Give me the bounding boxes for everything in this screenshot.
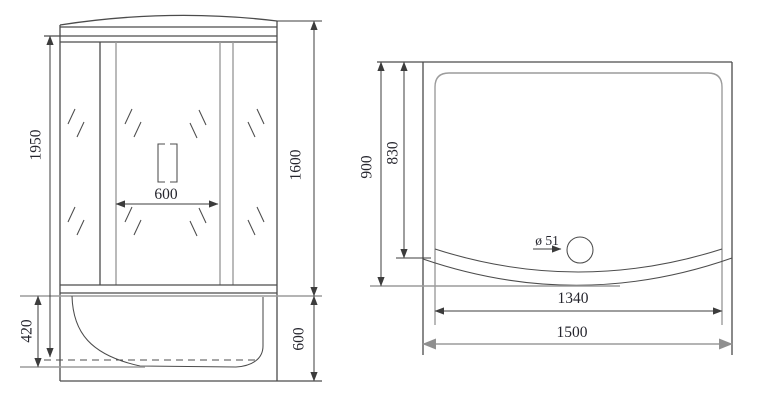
glass-hatch-icon: [248, 109, 264, 137]
glass-hatch-icon: [248, 207, 264, 235]
page-background: 1950 600 1600 420 600 900 830 ø 51 1340 …: [0, 0, 768, 403]
dim-label-tray-height: 600: [291, 327, 308, 351]
glass-hatch-icon: [68, 207, 84, 235]
dim-label-outer-depth: 900: [359, 155, 376, 179]
door-handle-left-bracket: [158, 144, 165, 182]
dim-label-inner-width: 1340: [558, 290, 589, 307]
drain-circle: [567, 237, 593, 263]
dim-label-door-width: 600: [154, 186, 178, 203]
dim-label-body-height: 1600: [288, 149, 305, 180]
tray-front-curve-inner: [435, 249, 722, 272]
front-view: 1950 600 1600 420 600: [19, 15, 322, 381]
glass-hatch-icon: [125, 207, 141, 235]
door-handle-right-bracket: [170, 144, 177, 182]
glass-hatch-icon: [190, 208, 206, 236]
dim-label-total-height: 1950: [28, 129, 45, 160]
top-view: 900 830 ø 51 1340 1500: [359, 62, 732, 355]
dim-label-drain-diameter: ø 51: [535, 233, 559, 248]
dim-label-outer-width: 1500: [557, 324, 588, 341]
technical-drawing: 1950 600 1600 420 600 900 830 ø 51 1340 …: [0, 0, 768, 403]
dim-label-tray-depth: 420: [19, 319, 36, 343]
glass-hatch-icon: [68, 109, 84, 137]
tray-inner-rim: [435, 73, 722, 325]
dim-label-inner-depth: 830: [385, 141, 402, 165]
tray-basin-profile: [72, 296, 263, 367]
cabin-roof-arc: [60, 15, 277, 25]
glass-hatch-icon: [125, 109, 141, 137]
glass-hatch-icon: [190, 110, 206, 138]
